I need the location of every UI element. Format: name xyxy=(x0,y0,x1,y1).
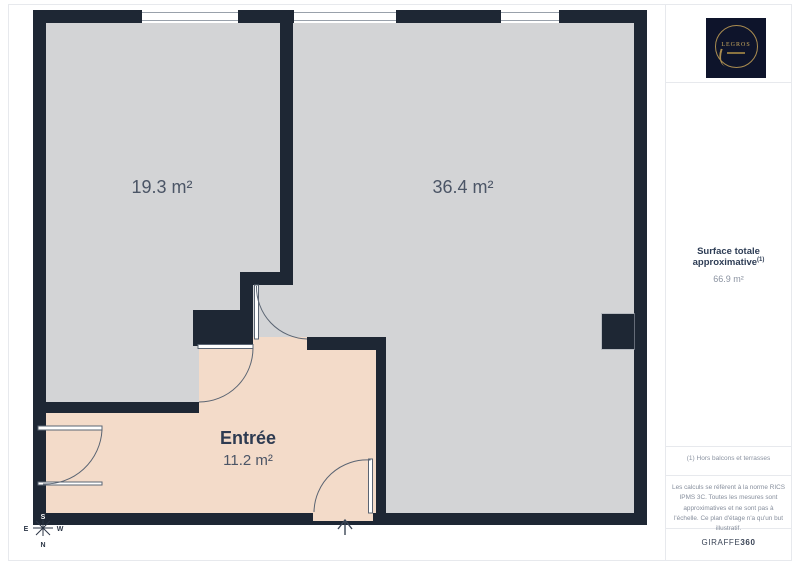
brand-name: GIRAFFE xyxy=(701,538,740,547)
interior-wall xyxy=(240,285,253,310)
surface-total-text: Surface totale approximative xyxy=(693,246,760,268)
sidebar-rule xyxy=(666,446,791,447)
logo-text: LEGROS xyxy=(706,42,766,48)
brand-suffix: 360 xyxy=(740,538,755,547)
agency-logo: LEGROS xyxy=(706,18,766,78)
window-icon xyxy=(142,10,238,23)
entree-floor xyxy=(199,349,253,413)
surface-total-value: 66.9 m² xyxy=(666,274,791,284)
logo-subtitle-bar xyxy=(727,52,745,54)
wall-notch xyxy=(602,314,634,349)
window-icon xyxy=(294,10,396,23)
sidebar-rule xyxy=(666,82,791,83)
entree-doorway-floor xyxy=(253,337,307,350)
sidebar-rule xyxy=(666,475,791,476)
entree-label-block: Entrée 11.2 m² xyxy=(178,428,318,469)
surface-footnote-marker: (1) xyxy=(757,257,764,263)
room-1-area-label: 19.3 m² xyxy=(92,177,232,198)
room-2-area-label: 36.4 m² xyxy=(393,177,533,198)
interior-wall xyxy=(376,337,386,513)
footnote-text: (1) Hors balcons et terrasses xyxy=(666,455,791,462)
legal-disclaimer-text: Les calculs se réfèrent à la norme RICS … xyxy=(672,483,785,534)
surface-summary: Surface totale approximative(1) 66.9 m² xyxy=(666,246,791,284)
entrance-doorway-floor xyxy=(313,513,373,521)
entree-floor xyxy=(253,350,376,413)
window-icon xyxy=(501,10,559,23)
room-2-nook-floor xyxy=(253,285,293,340)
giraffe360-brand: GIRAFFE360 xyxy=(666,538,791,547)
interior-wall xyxy=(307,337,386,350)
floorplan-page: E W N S 19.3 m² 36.4 m² Entrée 11.2 m² L… xyxy=(0,0,800,565)
surface-total-label: Surface totale approximative(1) xyxy=(666,246,791,268)
entree-area-label: 11.2 m² xyxy=(178,452,318,469)
interior-wall xyxy=(193,310,253,346)
entree-room-name: Entrée xyxy=(178,428,318,449)
interior-wall xyxy=(240,272,293,285)
